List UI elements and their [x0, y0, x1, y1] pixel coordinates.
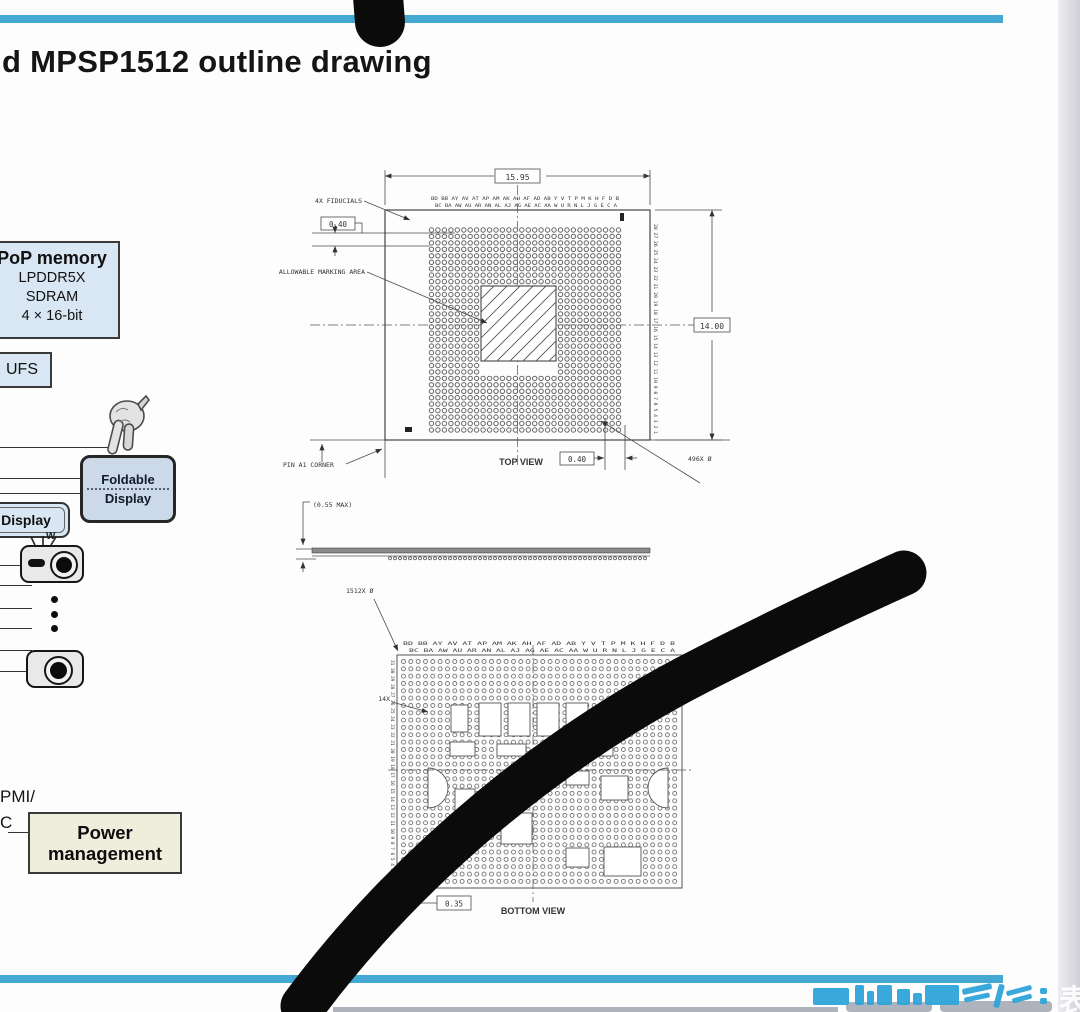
pop-memory-block: PoP memory LPDDR5X SDRAM 4 × 16-bit: [0, 241, 120, 339]
side-view-drawing: (0.55 MAX): [296, 501, 650, 572]
camera-w-label: W: [46, 531, 55, 542]
camera-lens-core: [50, 662, 67, 679]
fiducials-label: 4X FIDUCIALS: [315, 197, 362, 205]
offset-top-label: 0.40: [329, 220, 348, 229]
foldable-label-2: Display: [83, 491, 173, 506]
ellipsis-dot: [51, 596, 58, 603]
pop-memory-title: PoP memory: [0, 247, 118, 269]
connector-line: [0, 478, 80, 479]
ufs-block: UFS: [0, 352, 52, 388]
page-edge-line: [333, 1007, 838, 1012]
page-edge-strip: 表: [1058, 0, 1080, 1012]
connector-line: [0, 671, 26, 672]
pop-memory-line: LPDDR5X: [0, 269, 118, 288]
watermark-fragment: [913, 993, 922, 1005]
pmi-label-line2: C: [0, 813, 12, 833]
camera-sensor: [28, 559, 45, 567]
watermark-fragment: [867, 991, 874, 1005]
marker-stroke-top: [377, 0, 380, 22]
fiducial-mark: [405, 427, 412, 432]
ufs-label: UFS: [6, 361, 38, 379]
connector-line: [0, 650, 32, 651]
camera-lens-core: [56, 557, 72, 573]
top-view-col-labels-2: BC BA AW AU AR AN AL AJ AG AE AC AA W U …: [435, 203, 618, 208]
connector-line: [0, 628, 32, 629]
dim-height: 14.00: [700, 322, 724, 331]
ball-count-top: 496X Ø: [688, 455, 712, 463]
fold-line: [87, 488, 169, 490]
foldable-label-1: Foldable: [83, 472, 173, 487]
power-label-2: management: [30, 843, 180, 864]
top-view-col-labels-1: BD BB AY AV AT AP AM AK AH AF AD AB Y V …: [431, 196, 620, 201]
top-view-row-labels: 28 27 26 25 24 23 22 21 20 19 18 17 16 1…: [653, 224, 658, 435]
bottom-view-label: BOTTOM VIEW: [501, 906, 566, 916]
connector-line: [0, 493, 80, 494]
top-view-label: TOP VIEW: [499, 457, 543, 467]
pin-a1-label: PIN A1 CORNER: [283, 461, 334, 469]
display-label: Display: [1, 512, 51, 528]
watermark-fragment: [897, 989, 910, 1005]
watermark-fragment: [877, 985, 892, 1005]
pmi-label-line1: PMI/: [0, 787, 35, 807]
watermark-fragment: [813, 988, 849, 1005]
display-block: Display: [0, 502, 70, 538]
bottom-view-col-labels-2: BC BA AW AU AR AN AL AJ AG AE AC AA W U …: [409, 648, 676, 653]
pop-memory-line: SDRAM: [0, 288, 118, 307]
rear-camera-icon: [20, 545, 84, 583]
ellipsis-dot: [51, 625, 58, 632]
bottom-accent-rule: [0, 975, 1003, 983]
watermark-fragment: [1040, 998, 1047, 1004]
side-view-ball-row: [389, 557, 647, 560]
offset-bottom-label: 0.40: [568, 455, 587, 464]
top-accent-rule: [0, 15, 1003, 23]
bottom-view-row-labels: 31 30 29 28 27 26 25 24 23 22 21 20 19 1…: [390, 660, 395, 883]
cropped-character: 表: [1059, 976, 1080, 1012]
connector-line: [0, 585, 32, 586]
watermark-fragment: [1040, 988, 1047, 994]
max-height-label: (0.55 MAX): [313, 501, 352, 509]
power-label-1: Power: [30, 822, 180, 843]
ellipsis-dot: [51, 611, 58, 618]
foldable-display-block: Foldable Display: [80, 455, 176, 523]
connector-line: [0, 608, 32, 609]
top-view-drawing: 15.95 BD BB AY AV AT AP AM AK AH AF AD A…: [279, 169, 730, 483]
photographed-slide: d MPSP1512 outline drawing 15.95: [0, 0, 1080, 1012]
fiducial-mark: [620, 213, 624, 221]
marking-area-label: ALLOWABLE MARKING AREA: [279, 268, 365, 276]
pop-memory-line: 4 × 16-bit: [0, 307, 118, 326]
fourteen-x-label: 14X: [378, 695, 390, 703]
ball-count-bottom: 1512X Ø: [346, 587, 373, 595]
front-camera-icon: [26, 650, 84, 688]
pointing-hand-icon: [94, 394, 152, 464]
watermark-fragment: [855, 985, 864, 1005]
dim-width: 15.95: [505, 173, 529, 182]
connector-line: [0, 565, 20, 566]
watermark-fragment: [925, 985, 959, 1005]
pitch-label: 0.35: [445, 900, 463, 909]
bottom-view-col-labels-1: BD BB AY AV AT AP AM AK AH AF AD AB Y V …: [403, 641, 676, 646]
power-management-block: Power management: [28, 812, 182, 874]
